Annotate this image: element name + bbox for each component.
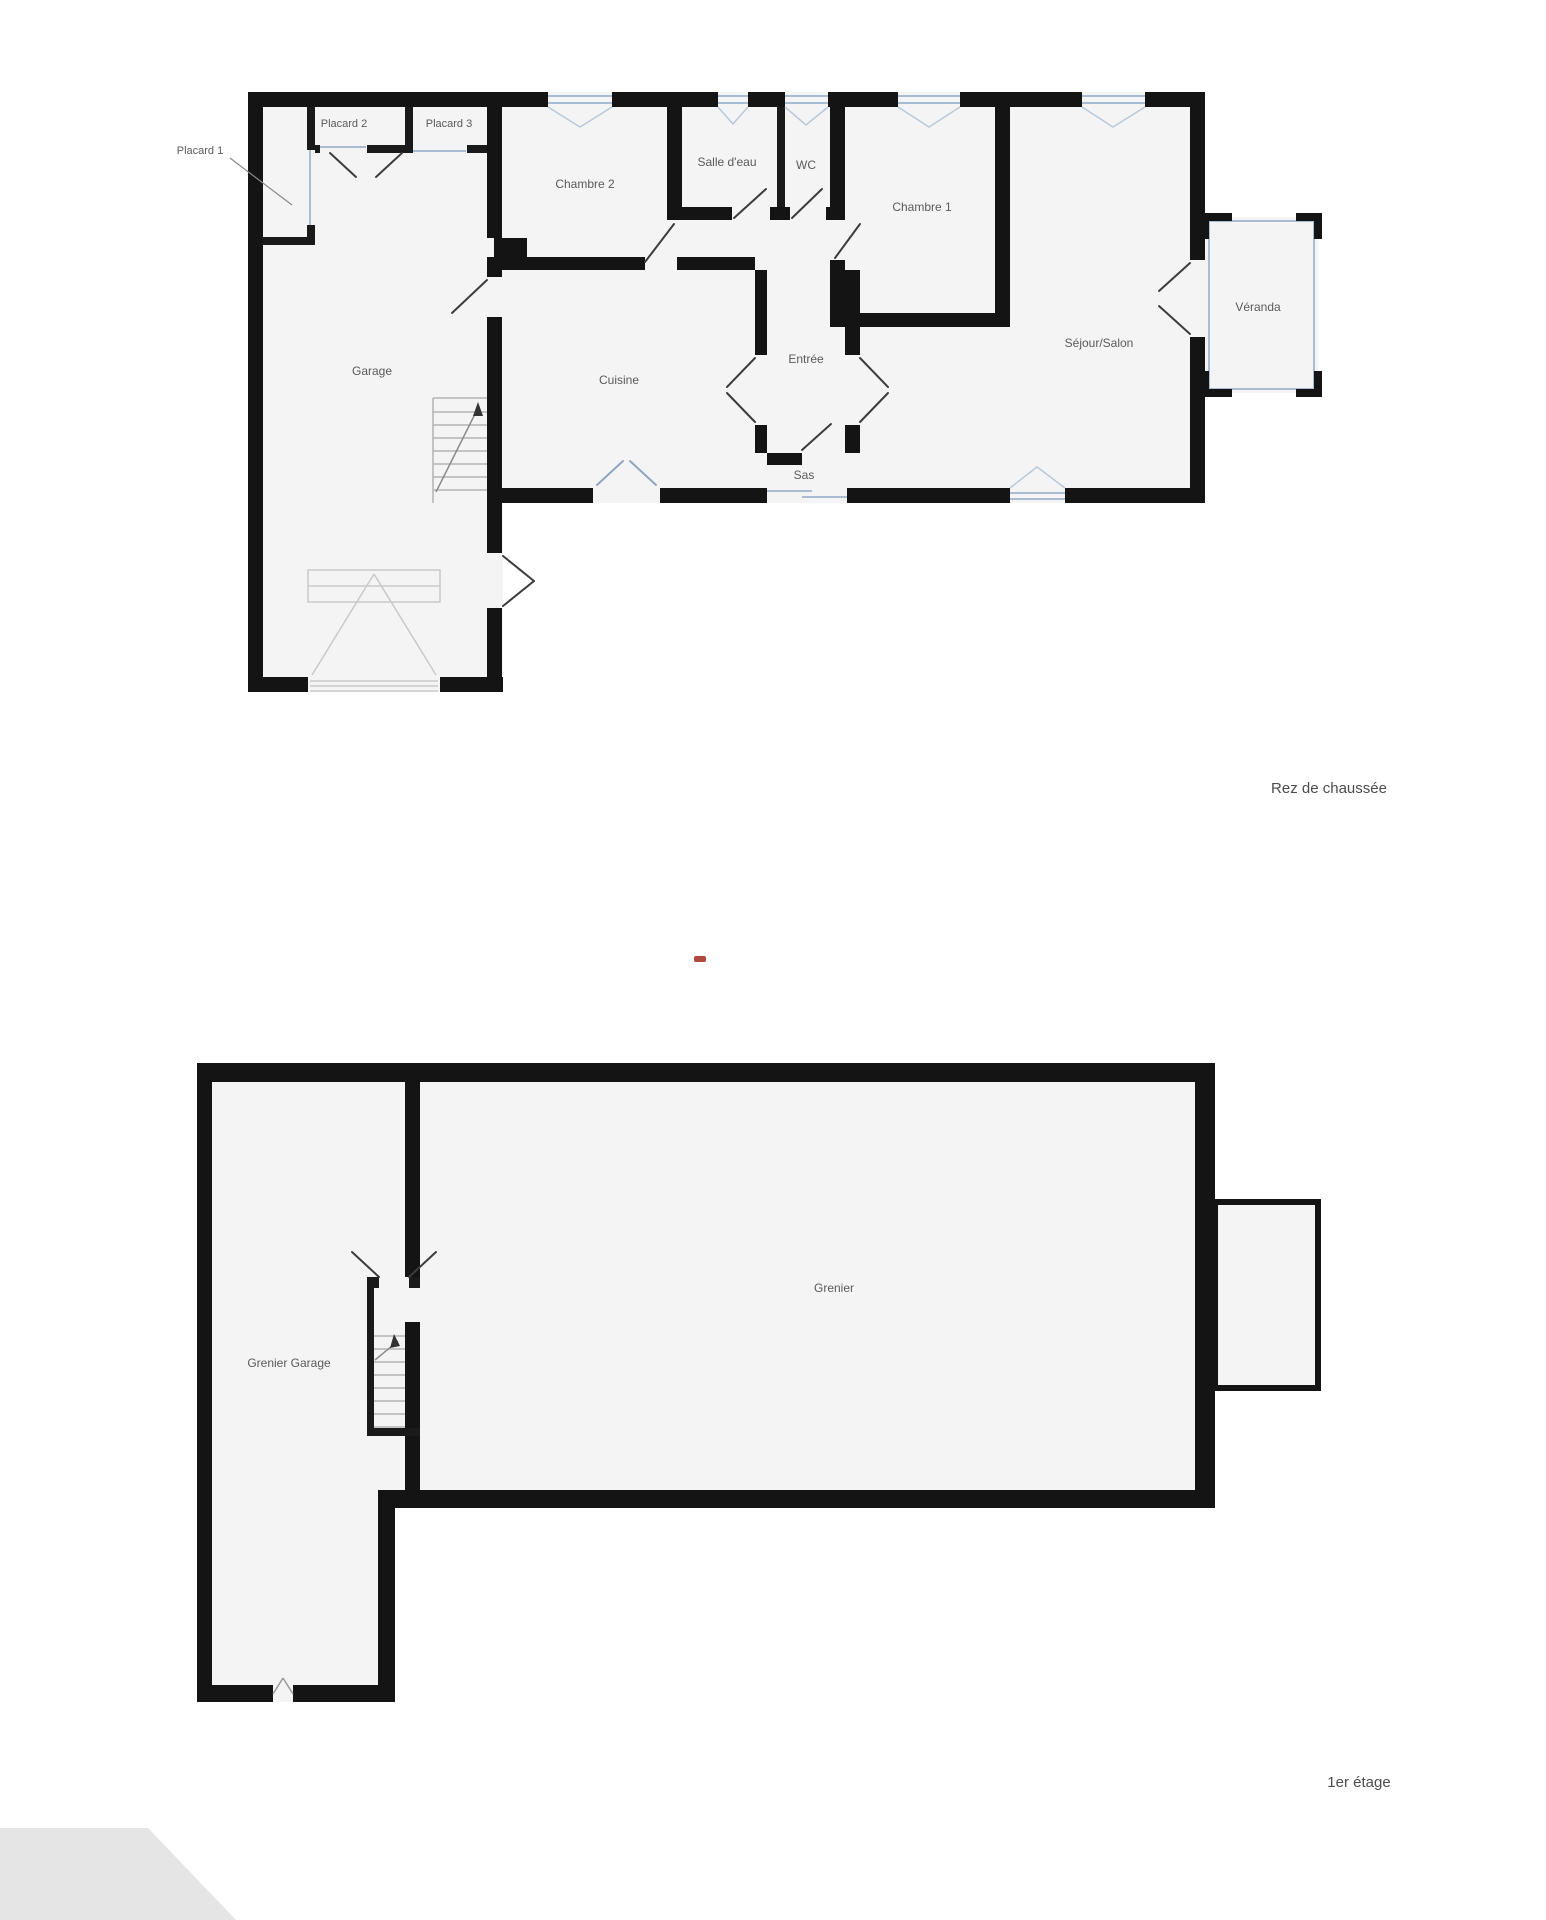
room-label-placard2: Placard 2 — [321, 118, 367, 130]
first-floor-footprint — [197, 1063, 1215, 1702]
red-mark — [694, 956, 706, 962]
floorplan-drawing: Placard 1 Placard 2 Placard 3 Chambre 2 … — [0, 0, 1546, 1920]
room-label-wc: WC — [796, 158, 816, 172]
room-label-chambre1: Chambre 1 — [892, 200, 952, 214]
room-label-sejour-salon: Séjour/Salon — [1065, 336, 1134, 350]
roof-annex — [1215, 1202, 1318, 1388]
room-label-placard1: Placard 1 — [177, 145, 223, 157]
floorplan-document: Placard 1 Placard 2 Placard 3 Chambre 2 … — [0, 0, 1546, 1920]
room-label-veranda: Véranda — [1235, 300, 1281, 314]
room-label-garage: Garage — [352, 364, 392, 378]
room-label-salle-deau: Salle d'eau — [697, 155, 756, 169]
room-label-cuisine: Cuisine — [599, 373, 639, 387]
first-floor-caption: 1er étage — [1327, 1774, 1390, 1791]
ground-floor-plan: Placard 1 Placard 2 Placard 3 Chambre 2 … — [177, 92, 1387, 797]
room-label-grenier: Grenier — [814, 1281, 854, 1295]
room-label-sas: Sas — [794, 468, 815, 482]
room-label-entree: Entrée — [788, 352, 824, 366]
ground-floor-caption: Rez de chaussée — [1271, 780, 1387, 797]
room-label-chambre2: Chambre 2 — [555, 177, 615, 191]
corner-wedge — [0, 1828, 236, 1920]
first-floor-plan: Grenier Garage Grenier 1er étage — [197, 1063, 1391, 1791]
room-label-grenier-garage: Grenier Garage — [247, 1356, 331, 1370]
room-label-placard3: Placard 3 — [426, 118, 472, 130]
